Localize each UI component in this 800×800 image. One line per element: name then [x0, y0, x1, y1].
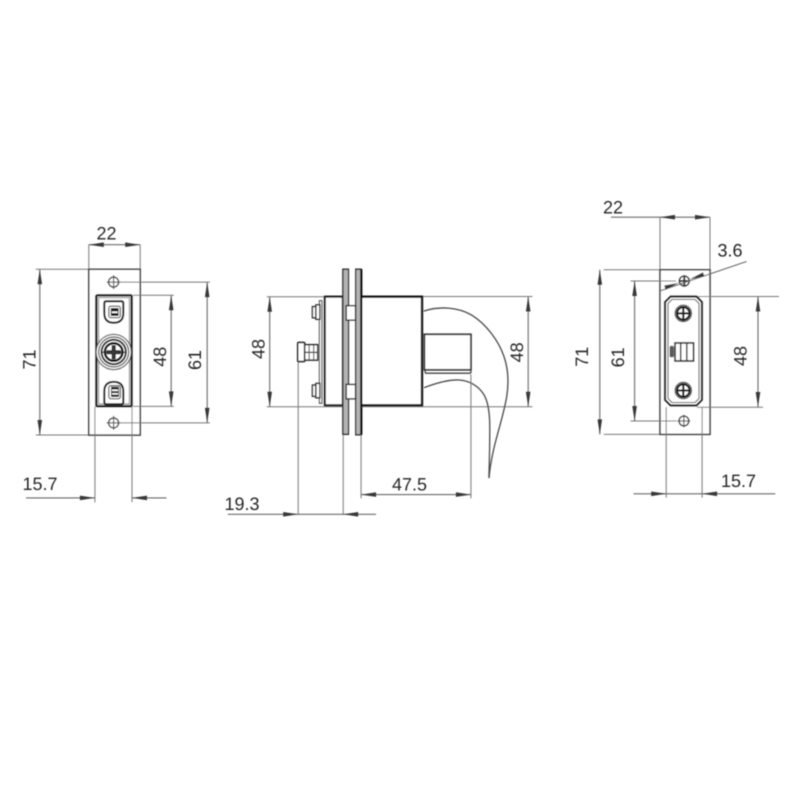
svg-text:22: 22 — [603, 198, 623, 218]
svg-text:48: 48 — [150, 347, 170, 367]
svg-text:19.3: 19.3 — [224, 494, 259, 514]
svg-text:48: 48 — [731, 346, 751, 366]
svg-text:3.6: 3.6 — [717, 241, 742, 261]
svg-text:22: 22 — [96, 224, 116, 244]
svg-text:71: 71 — [572, 347, 592, 367]
svg-text:61: 61 — [608, 347, 628, 367]
svg-text:48: 48 — [507, 342, 527, 362]
svg-text:15.7: 15.7 — [721, 471, 756, 491]
svg-text:15.7: 15.7 — [22, 474, 57, 494]
svg-text:47.5: 47.5 — [392, 475, 427, 495]
svg-text:61: 61 — [185, 350, 205, 370]
svg-text:71: 71 — [20, 349, 40, 369]
svg-text:48: 48 — [249, 339, 269, 359]
